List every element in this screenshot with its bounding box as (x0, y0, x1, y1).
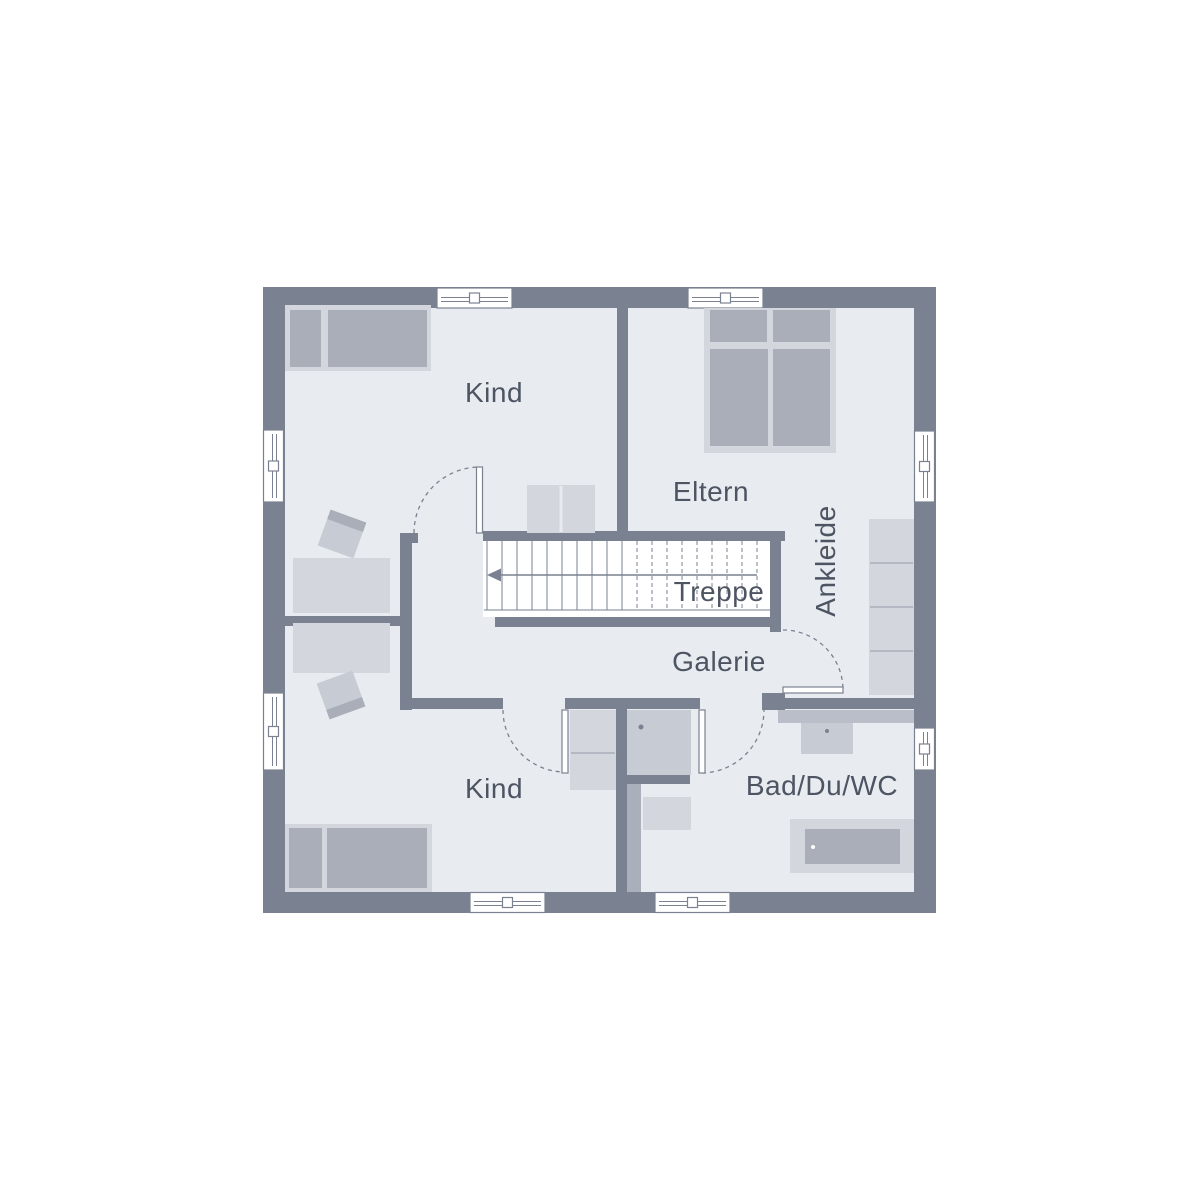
wall-bath-vestibule (616, 707, 627, 892)
desk-kind-top (293, 558, 390, 613)
room-label-galerie: Galerie (672, 646, 766, 677)
floor-plan-page: Kind Eltern Ankleide Treppe Galerie Kind… (0, 0, 1200, 1200)
floor-plan: Kind Eltern Ankleide Treppe Galerie Kind… (0, 0, 1200, 1200)
shower-drain-icon (639, 725, 644, 730)
wall-shower (627, 775, 690, 784)
door-leaf (477, 467, 483, 533)
room-label-ankleide: Ankleide (810, 505, 841, 616)
room-label-bad: Bad/Du/WC (746, 770, 898, 801)
window-right-upper (915, 431, 935, 502)
wall-galerie-bottom-mid (565, 698, 700, 709)
desk-kind-bottom (293, 623, 390, 673)
wardrobe-ankleide (869, 519, 914, 695)
wall-kind-eltern (617, 308, 628, 531)
wall-exterior-left (263, 287, 285, 913)
vanity-counter (778, 710, 914, 723)
installation-wall (627, 784, 641, 892)
door-leaf (562, 710, 568, 773)
door-leaf (783, 687, 843, 693)
wall-bad-top (762, 698, 914, 709)
shower (627, 710, 691, 775)
wall-stair-bottom (495, 617, 781, 627)
room-label-eltern: Eltern (673, 476, 749, 507)
wall-exterior-bottom (263, 892, 936, 913)
washbasin (801, 723, 853, 754)
window-bottom-left (470, 893, 545, 913)
sideboard (527, 485, 595, 533)
door-leaf (699, 710, 705, 773)
wall-corridor-stub (400, 533, 418, 543)
room-label-kind-top: Kind (465, 377, 523, 408)
wall-stair-right (770, 531, 781, 632)
wall-exterior-right (914, 287, 936, 913)
wall-exterior-top (263, 287, 936, 308)
window-left-lower (264, 693, 284, 770)
window-right-lower (915, 728, 935, 770)
toilet (643, 797, 691, 830)
window-top-left (437, 288, 512, 308)
room-label-treppe: Treppe (674, 576, 765, 607)
window-top-right (688, 288, 763, 308)
bed-eltern (704, 308, 836, 453)
room-label-kind-bottom: Kind (465, 773, 523, 804)
cabinet-vestibule (570, 710, 616, 790)
bed-kind-bottom (285, 824, 432, 892)
bathtub-tap-icon (811, 845, 815, 849)
bed-kind-top (285, 305, 431, 371)
wall-galerie-bottom-left (412, 698, 503, 709)
bathtub (790, 819, 914, 873)
window-left-upper (264, 430, 284, 502)
washbasin-tap-icon (825, 729, 829, 733)
window-bottom-right (655, 893, 730, 913)
